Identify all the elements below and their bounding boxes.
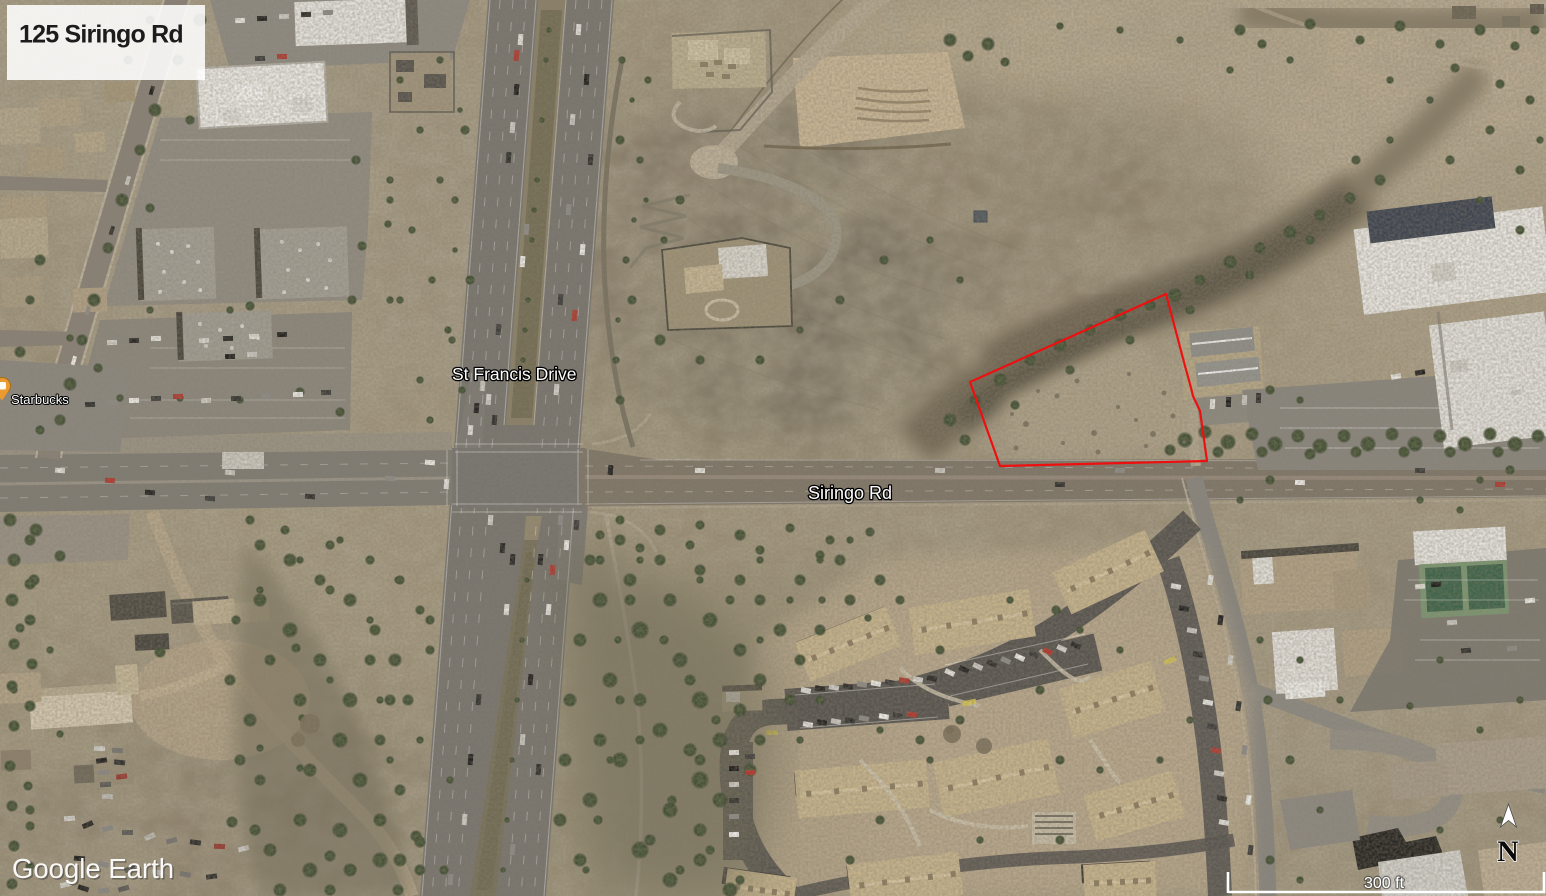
svg-text:Siringo Rd: Siringo Rd <box>808 483 892 503</box>
svg-text:125 Siringo Rd: 125 Siringo Rd <box>19 21 183 49</box>
svg-text:Google Earth: Google Earth <box>12 853 174 884</box>
svg-text:300 ft: 300 ft <box>1364 875 1405 892</box>
svg-text:St Francis Drive: St Francis Drive <box>452 364 576 384</box>
svg-text:N: N <box>1497 835 1519 868</box>
svg-text:Starbucks: Starbucks <box>11 392 69 407</box>
